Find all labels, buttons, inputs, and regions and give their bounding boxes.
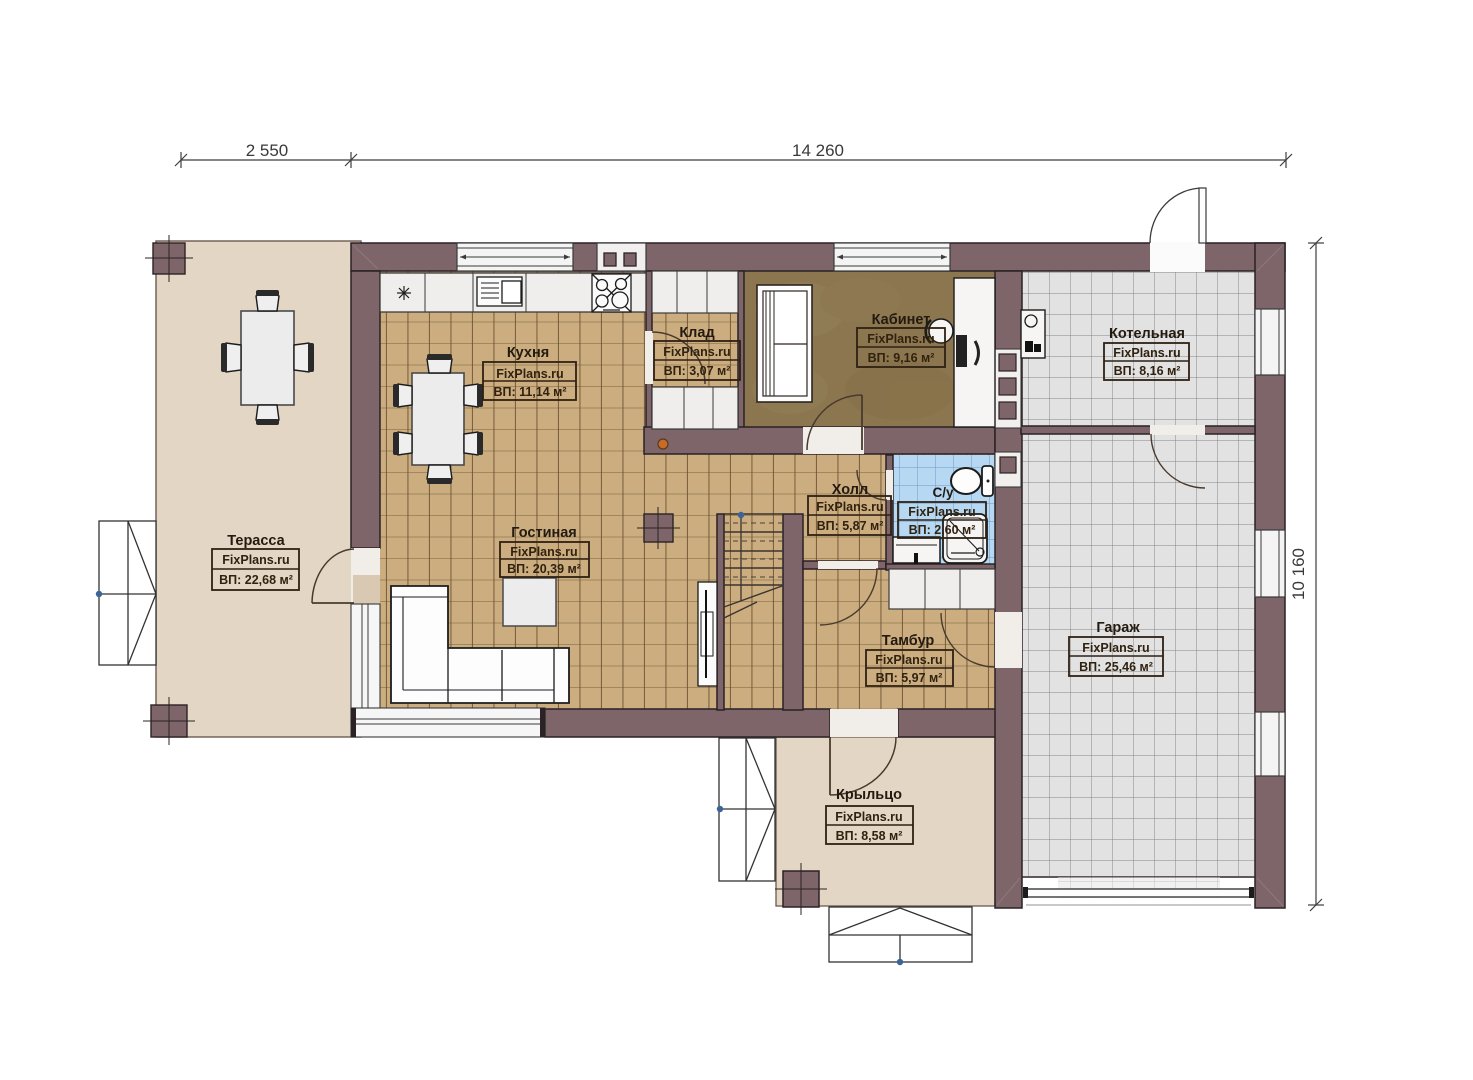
svg-text:Гараж: Гараж: [1096, 620, 1140, 636]
svg-text:ВП: 8,16 м²: ВП: 8,16 м²: [1114, 364, 1181, 378]
svg-text:Кухня: Кухня: [507, 345, 549, 361]
svg-text:Клад: Клад: [679, 325, 714, 341]
svg-text:FixPlans.ru: FixPlans.ru: [908, 505, 975, 519]
svg-text:Терасса: Терасса: [227, 533, 285, 549]
svg-text:ВП: 5,97 м²: ВП: 5,97 м²: [876, 671, 943, 685]
svg-text:Тамбур: Тамбур: [882, 633, 935, 649]
svg-text:Крыльцо: Крыльцо: [836, 787, 902, 803]
svg-text:С/у: С/у: [932, 485, 954, 500]
svg-text:2 550: 2 550: [246, 141, 289, 160]
svg-text:FixPlans.ru: FixPlans.ru: [875, 653, 942, 667]
svg-text:ВП: 22,68 м²: ВП: 22,68 м²: [219, 573, 293, 587]
svg-text:Кабинет: Кабинет: [872, 312, 931, 328]
svg-text:FixPlans.ru: FixPlans.ru: [867, 332, 934, 346]
svg-text:FixPlans.ru: FixPlans.ru: [835, 810, 902, 824]
svg-text:ВП: 2,60 м²: ВП: 2,60 м²: [909, 523, 976, 537]
svg-text:FixPlans.ru: FixPlans.ru: [816, 500, 883, 514]
svg-text:FixPlans.ru: FixPlans.ru: [1082, 641, 1149, 655]
svg-text:ВП: 9,16 м²: ВП: 9,16 м²: [868, 351, 935, 365]
svg-text:14 260: 14 260: [792, 141, 844, 160]
svg-text:ВП: 25,46 м²: ВП: 25,46 м²: [1079, 660, 1153, 674]
svg-text:ВП: 11,14 м²: ВП: 11,14 м²: [493, 385, 566, 399]
svg-text:FixPlans.ru: FixPlans.ru: [1113, 346, 1180, 360]
svg-text:Гостиная: Гостиная: [511, 525, 577, 541]
svg-text:ВП: 3,07 м²: ВП: 3,07 м²: [664, 364, 731, 378]
svg-text:FixPlans.ru: FixPlans.ru: [510, 545, 577, 559]
svg-text:ВП: 8,58 м²: ВП: 8,58 м²: [836, 829, 903, 843]
svg-text:10 160: 10 160: [1289, 548, 1308, 600]
svg-text:ВП: 5,87 м²: ВП: 5,87 м²: [817, 519, 884, 533]
svg-text:ВП: 20,39 м²: ВП: 20,39 м²: [507, 562, 581, 576]
svg-text:FixPlans.ru: FixPlans.ru: [222, 553, 289, 567]
svg-text:FixPlans.ru: FixPlans.ru: [496, 367, 563, 381]
svg-text:FixPlans.ru: FixPlans.ru: [663, 345, 730, 359]
svg-text:Котельная: Котельная: [1109, 326, 1185, 342]
